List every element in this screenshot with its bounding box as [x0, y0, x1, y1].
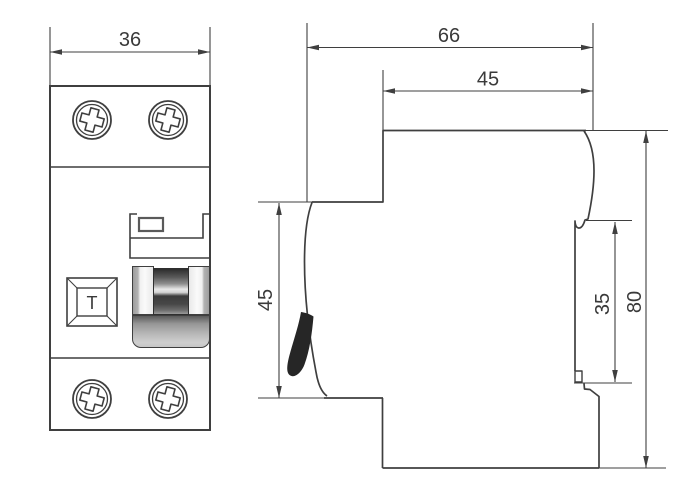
dimension-label-depth: 66 — [438, 25, 460, 47]
arrowhead-icon — [581, 45, 593, 51]
rocker-switch — [132, 266, 210, 348]
dimension-label-front-height: 45 — [255, 289, 277, 311]
arrowhead-icon — [612, 370, 618, 382]
dimension-height-80: 80 — [624, 131, 649, 468]
test-button-label: T — [87, 293, 98, 313]
dimension-upper-depth-45: 45 — [383, 69, 593, 94]
dimension-label-height: 80 — [624, 291, 646, 313]
din-claw-bottom — [584, 384, 599, 469]
dimension-label-rail-recess: 35 — [592, 293, 614, 315]
rocker-left-post — [132, 266, 154, 315]
din-clip-nub — [575, 371, 582, 382]
drawing-svg: 36 — [0, 0, 700, 500]
front-view: 36 — [50, 27, 210, 430]
rocker-right-post — [188, 266, 210, 315]
din-lever-icon — [287, 312, 313, 376]
dimension-front-height-45: 45 — [255, 203, 282, 398]
dimension-label-width: 36 — [119, 29, 141, 51]
arrowhead-icon — [383, 88, 395, 94]
technical-drawing-circuit-breaker: 36 — [0, 0, 700, 500]
arrowhead-icon — [643, 456, 649, 468]
profile-back-curve — [575, 131, 594, 371]
arrowhead-icon — [198, 49, 210, 55]
dimension-label-upper-depth: 45 — [477, 69, 499, 91]
rocker-handle — [153, 268, 189, 315]
arrowhead-icon — [276, 203, 282, 215]
profile-top — [312, 131, 586, 203]
arrowhead-icon — [50, 49, 62, 55]
arrowhead-icon — [276, 386, 282, 398]
dimension-width-36: 36 — [50, 27, 210, 86]
profile-front-curve — [305, 203, 328, 397]
arrowhead-icon — [643, 131, 649, 143]
arrowhead-icon — [612, 222, 618, 234]
dimension-depth-66: 66 — [307, 25, 593, 50]
profile-front-step — [324, 398, 383, 468]
side-view: 66 45 45 35 — [255, 23, 668, 468]
rocker-base — [132, 315, 210, 348]
extension-lines — [258, 23, 668, 468]
arrowhead-icon — [581, 88, 593, 94]
dimension-rail-recess-35: 35 — [592, 222, 618, 382]
arrowhead-icon — [307, 45, 319, 51]
breaker-side-profile — [287, 131, 599, 469]
